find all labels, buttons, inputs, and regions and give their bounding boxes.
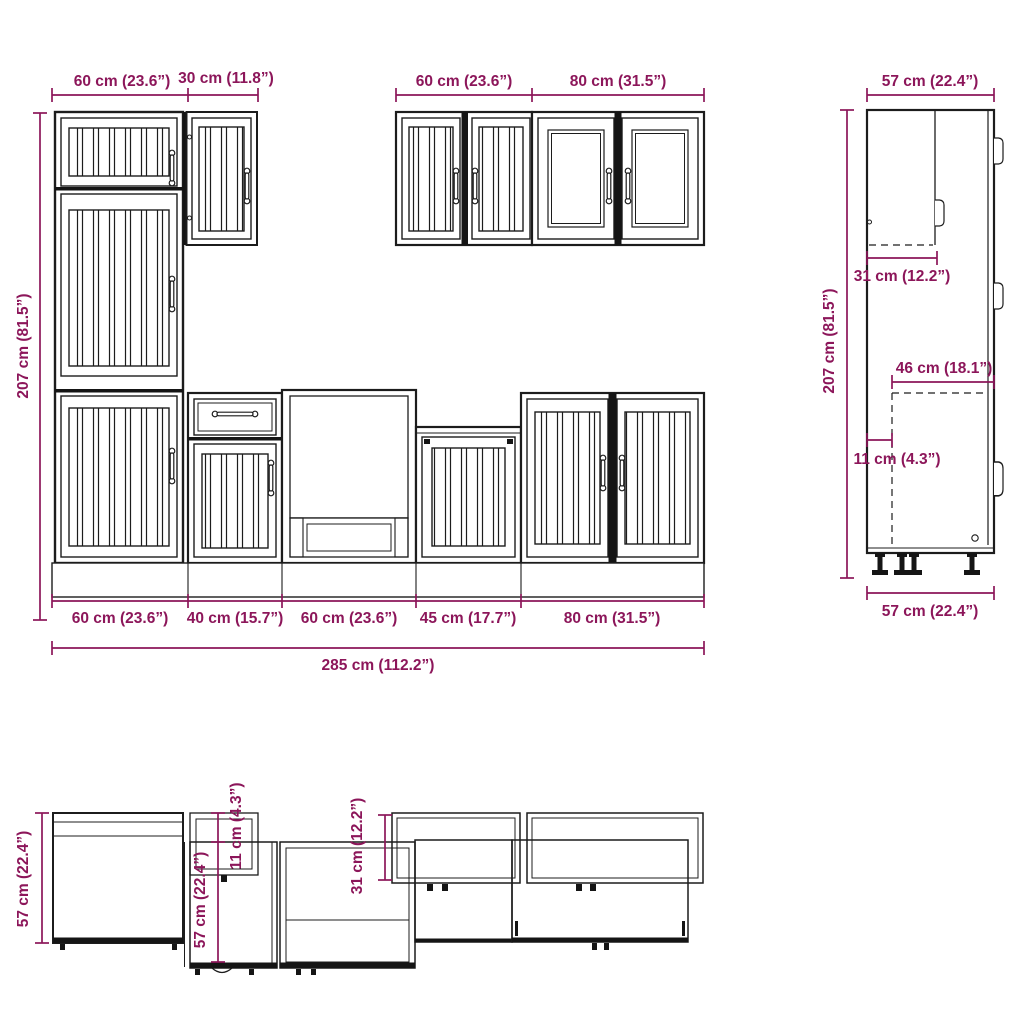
dim-tall-cabinet-width: 60 cm (23.6”): [74, 73, 171, 90]
door-handle: [169, 150, 175, 186]
base-cabinet-40-front: [188, 393, 282, 563]
side-handle-profile: [994, 138, 1003, 164]
dim-side-height: 207 cm (81.5”): [821, 288, 838, 393]
dim-side-interior-depth: 46 cm (18.1”): [896, 360, 993, 377]
door-handle: [606, 168, 612, 204]
dim-base-80: 80 cm (31.5”): [564, 610, 661, 627]
dim-base-40: 40 cm (15.7”): [187, 610, 284, 627]
door-handle: [619, 455, 625, 491]
dim-side-plinth-recess: 11 cm (4.3”): [853, 451, 940, 468]
plinth-front: [52, 563, 704, 597]
door-handle: [169, 276, 175, 312]
tall-cabinet-front: [55, 112, 187, 563]
door-handle: [244, 168, 250, 204]
dim-side-bottom-depth: 57 cm (22.4”): [882, 603, 979, 620]
wall-cabinet-80-front: [532, 112, 704, 245]
dim-plan-drawer-extension: 11 cm (4.3”): [228, 782, 245, 869]
door-handle: [453, 168, 459, 204]
side-handle-profile: [994, 283, 1003, 309]
dim-front-height: 207 cm (81.5”): [15, 293, 32, 398]
side-view-body: [867, 110, 1003, 575]
base-cabinet-80-front: [521, 393, 704, 563]
side-handle-profile: [935, 200, 944, 226]
oven-cabinet-60-front: [282, 390, 416, 563]
dim-plan-base-depth: 57 cm (22.4”): [192, 852, 209, 949]
dim-side-top-depth: 57 cm (22.4”): [882, 73, 979, 90]
dim-plan-wall-depth: 31 cm (12.2”): [349, 798, 366, 895]
dim-base-45: 45 cm (17.7”): [420, 610, 517, 627]
base-cabinet-45-front: [416, 427, 521, 563]
dim-wall-30-width: 30 cm (11.8”): [178, 70, 274, 87]
door-handle: [268, 460, 274, 496]
dim-base-60-mid: 60 cm (23.6”): [301, 610, 398, 627]
dim-plan-depth: 57 cm (22.4”): [15, 831, 32, 928]
wall-cabinet-30-front: [187, 112, 258, 245]
drawer-handle: [212, 411, 258, 417]
dim-wall-60-width: 60 cm (23.6”): [416, 73, 513, 90]
door-handle: [600, 455, 606, 491]
side-handle-profile: [994, 462, 1003, 496]
dim-wall-80-width: 80 cm (31.5”): [570, 73, 667, 90]
door-handle: [625, 168, 631, 204]
door-handle: [472, 168, 478, 204]
door-handle: [169, 448, 175, 484]
wall-cabinet-60-front: [396, 112, 532, 245]
dim-base-60-left: 60 cm (23.6”): [72, 610, 169, 627]
kitchen-cabinet-dimension-diagram: 60 cm (23.6”) 30 cm (11.8”) 60 cm (23.6”…: [0, 0, 1024, 1024]
dim-side-wall-depth: 31 cm (12.2”): [854, 268, 951, 285]
dim-total-width: 285 cm (112.2”): [322, 657, 435, 674]
